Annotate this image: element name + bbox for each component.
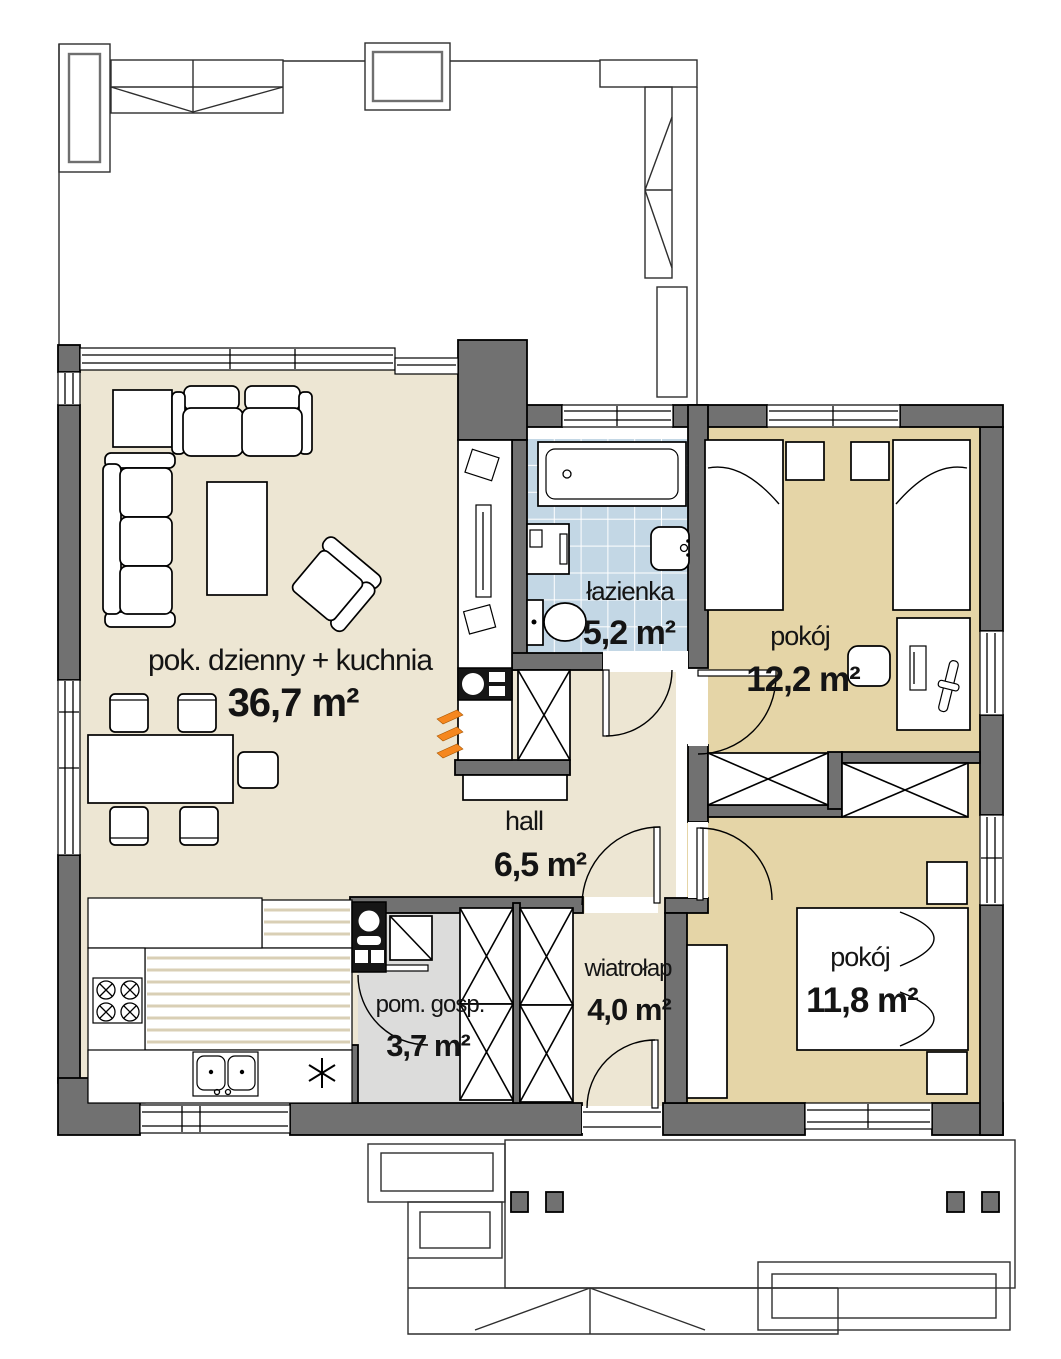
nightstand	[927, 862, 967, 904]
chair	[180, 807, 218, 845]
bedroom2-label: pokój	[830, 942, 890, 972]
wardrobe	[687, 945, 727, 1098]
left-window-large	[58, 680, 80, 855]
porch-pillar	[947, 1192, 964, 1212]
chair	[238, 752, 278, 788]
dining-table	[88, 735, 233, 803]
chair	[110, 807, 148, 845]
washing-machine	[527, 524, 569, 574]
bathroom-window	[562, 405, 673, 427]
utility-area: 3,7 m²	[386, 1028, 470, 1063]
bedroom1-desk-window	[980, 631, 1003, 715]
living-room-label: pok. dzienny + kuchnia	[148, 644, 433, 677]
kitchen-island	[145, 948, 352, 1050]
corner-column	[458, 340, 527, 440]
chimney	[59, 44, 110, 172]
door-leaf	[697, 828, 703, 900]
utility-label: pom. gosp.	[376, 991, 485, 1018]
single-bed	[705, 440, 783, 610]
bedroom1-area: 12,2 m²	[746, 660, 860, 699]
kitchen-counter	[88, 898, 262, 948]
kitchen-tall-counter	[458, 440, 512, 760]
bathroom-label: łazienka	[586, 576, 675, 606]
kitchen	[88, 898, 386, 1103]
porch-step	[408, 1202, 502, 1258]
monitor	[910, 646, 926, 690]
hall-sideboard	[463, 775, 567, 800]
stove-icon	[93, 978, 142, 1023]
bedroom2-window	[805, 1103, 932, 1129]
bedroom1-label: pokój	[770, 621, 830, 651]
porch-pillar	[511, 1192, 528, 1212]
kitchen-window	[140, 1105, 290, 1133]
double-bed	[797, 908, 968, 1050]
terrace-glazing	[80, 348, 458, 374]
oven-column-icon	[352, 902, 386, 972]
bedroom2-area: 11,8 m²	[806, 981, 918, 1020]
bathtub	[538, 442, 686, 506]
toilet	[527, 600, 586, 645]
door-leaf	[603, 670, 609, 736]
hall-closet	[518, 670, 570, 760]
door-leaf	[652, 1040, 658, 1108]
side-table	[113, 390, 172, 447]
bedroom2-side-window	[980, 815, 1003, 905]
wardrobe-x	[842, 763, 968, 817]
single-bed	[893, 440, 970, 610]
bathroom-area: 5,2 m²	[583, 614, 676, 652]
wardrobe-x	[520, 1005, 573, 1102]
utility-washing-machine	[390, 916, 432, 960]
wardrobe-x	[520, 908, 573, 1005]
porch-pillar	[546, 1192, 563, 1212]
door-leaf	[654, 827, 660, 903]
hall-label: hall	[505, 806, 543, 836]
vestibule-area: 4,0 m²	[587, 992, 671, 1027]
nightstand	[786, 442, 824, 480]
vestibule-label: wiatrołap	[583, 955, 672, 982]
left-window-small	[58, 372, 80, 405]
wardrobe-x	[708, 753, 828, 805]
living-room-area: 36,7 m²	[228, 681, 360, 725]
porch-pillar	[982, 1192, 999, 1212]
wardrobe-x	[460, 908, 513, 1004]
nightstand	[927, 1052, 967, 1094]
floor-plan-drawing: pok. dzienny + kuchnia 36,7 m² łazienka …	[0, 0, 1061, 1359]
bedroom1-top-window	[767, 405, 900, 427]
porch-slab	[505, 1140, 1015, 1288]
planter	[758, 1262, 1010, 1330]
sofa-three-seat	[103, 453, 175, 627]
entry-porch	[368, 1140, 1015, 1334]
desk	[897, 618, 970, 730]
washbasin	[651, 527, 690, 570]
nightstand	[851, 442, 889, 480]
floor-plan: pok. dzienny + kuchnia 36,7 m² łazienka …	[0, 0, 1061, 1359]
cooktop-icon	[458, 668, 512, 700]
coffee-table	[207, 482, 267, 595]
sink-icon	[193, 1052, 258, 1096]
hall-area: 6,5 m²	[494, 846, 587, 884]
